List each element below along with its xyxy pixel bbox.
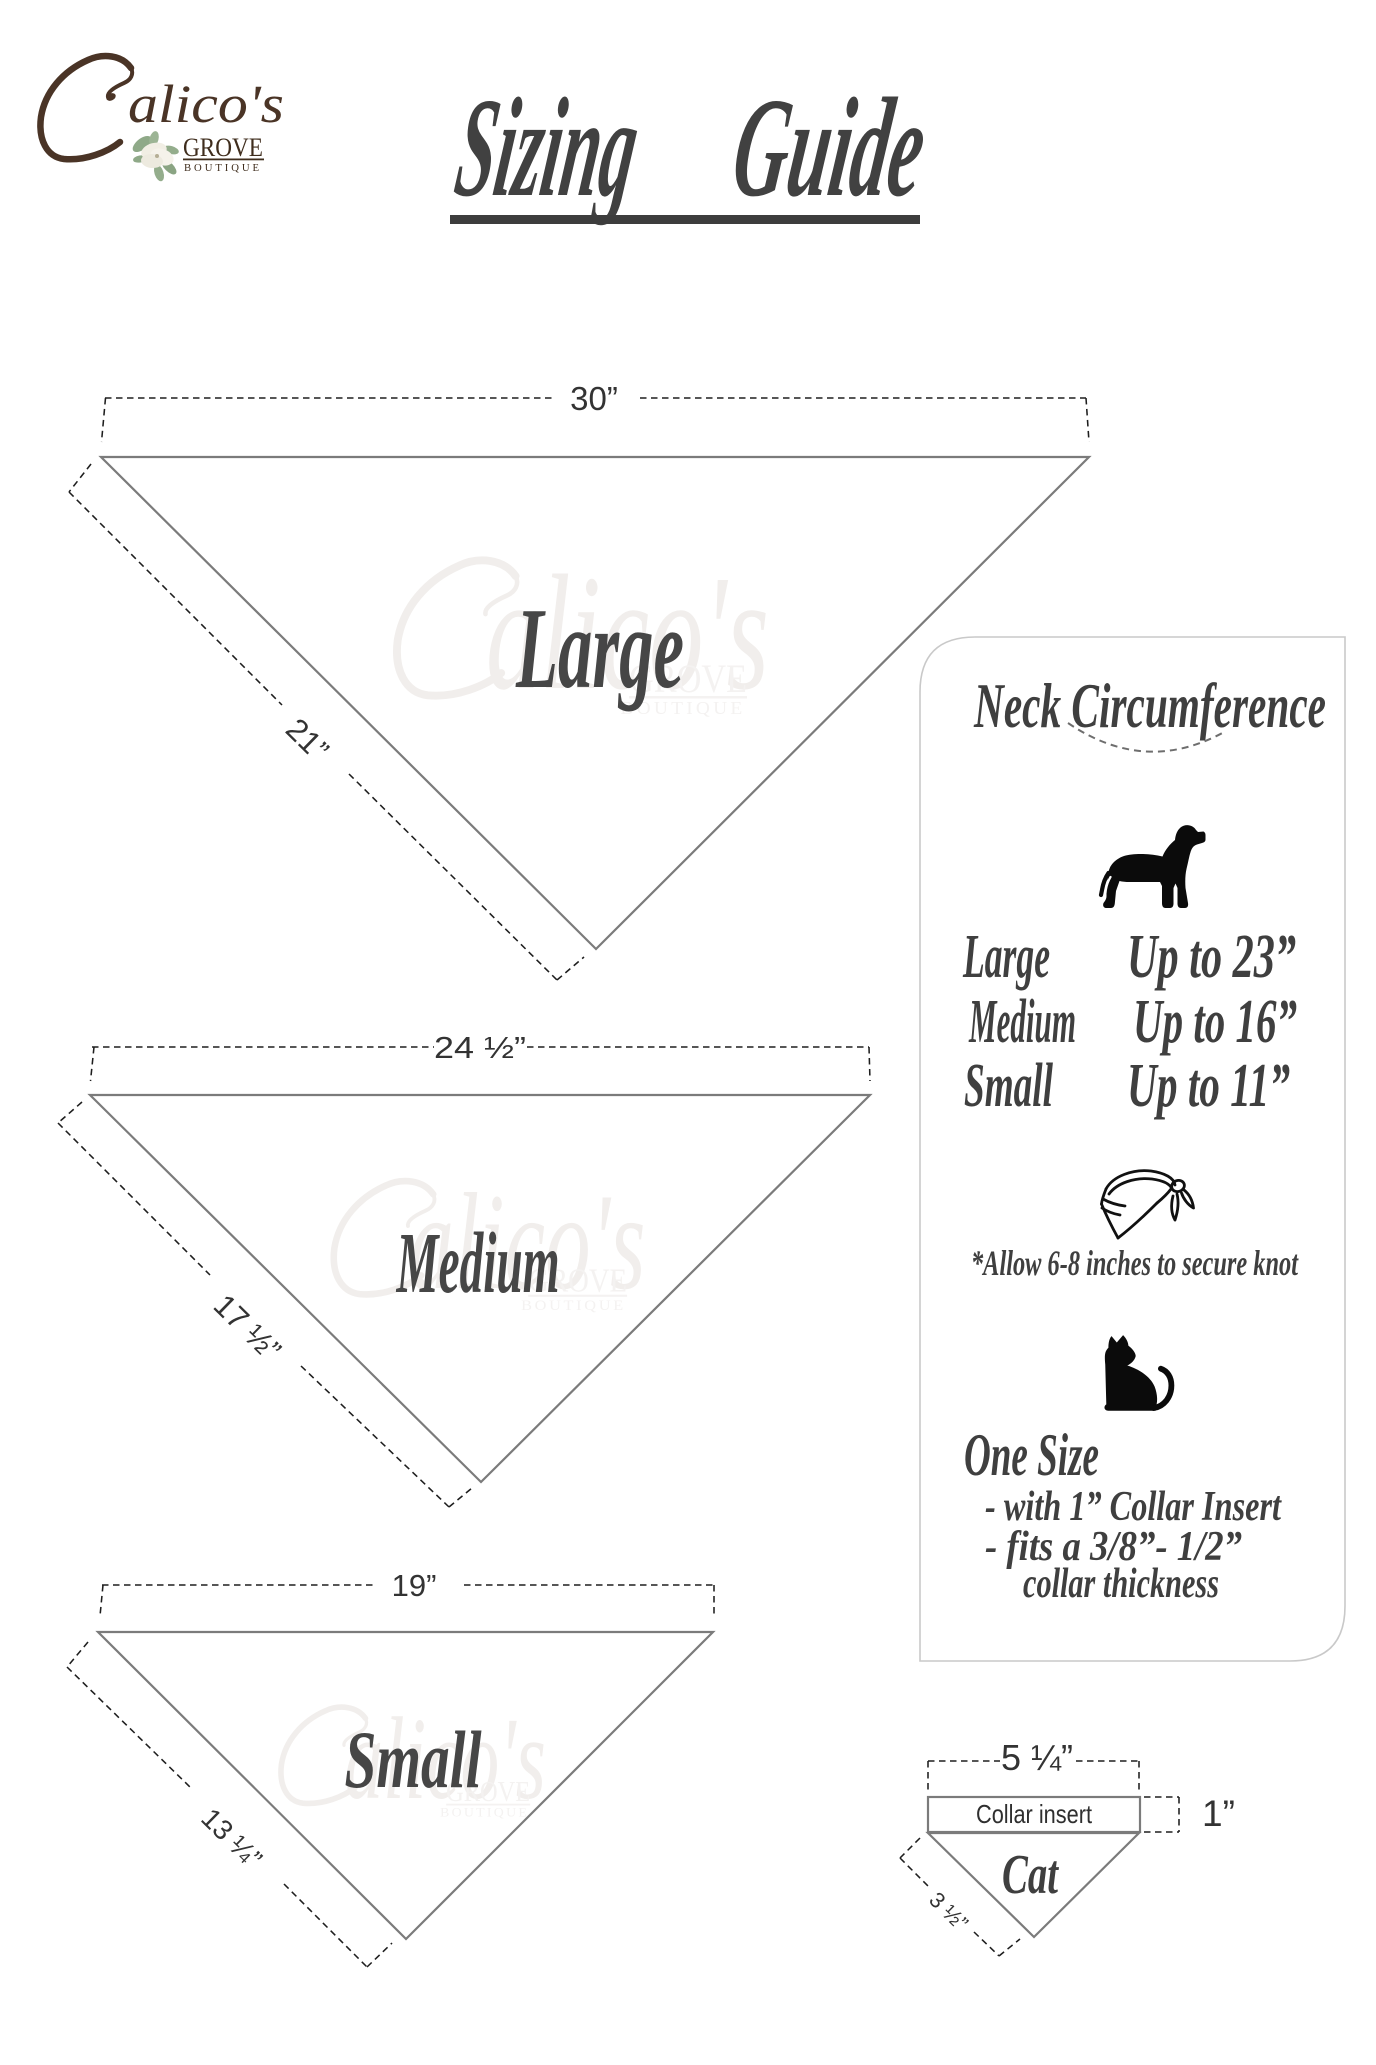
svg-text:Large: Large bbox=[515, 585, 684, 712]
svg-text:Large: Large bbox=[962, 923, 1050, 991]
svg-text:One Size: One Size bbox=[964, 1422, 1099, 1488]
svg-text:19”: 19” bbox=[392, 1568, 437, 1603]
svg-text:Medium: Medium bbox=[395, 1214, 559, 1311]
svg-text:Collar insert: Collar insert bbox=[976, 1799, 1093, 1829]
svg-text:24 ½”: 24 ½” bbox=[434, 1030, 526, 1065]
svg-text:30”: 30” bbox=[570, 380, 618, 417]
svg-text:Cat: Cat bbox=[1002, 1844, 1059, 1906]
svg-text:Sizing: Sizing bbox=[448, 69, 648, 226]
svg-text:Neck Circumference: Neck Circumference bbox=[973, 670, 1326, 741]
svg-text:Small: Small bbox=[345, 1714, 482, 1805]
svg-text:Up to 23”: Up to 23” bbox=[1127, 923, 1296, 991]
svg-text:BOUTIQUE: BOUTIQUE bbox=[184, 162, 262, 174]
svg-text:collar thickness: collar thickness bbox=[1023, 1561, 1219, 1607]
svg-text:Up to 16”: Up to 16” bbox=[1133, 988, 1297, 1056]
svg-text:Up to 11”: Up to 11” bbox=[1127, 1052, 1290, 1120]
svg-text:5 ¼”: 5 ¼” bbox=[1001, 1737, 1073, 1778]
svg-text:Small: Small bbox=[964, 1052, 1053, 1120]
svg-text:Guide: Guide bbox=[725, 69, 935, 226]
svg-text:*Allow 6-8 inches to secure kn: *Allow 6-8 inches to secure knot bbox=[971, 1243, 1299, 1283]
svg-text:Medium: Medium bbox=[968, 988, 1076, 1056]
svg-text:alico's: alico's bbox=[128, 74, 284, 134]
svg-text:1”: 1” bbox=[1202, 1793, 1235, 1834]
svg-text:GROVE: GROVE bbox=[183, 133, 263, 162]
